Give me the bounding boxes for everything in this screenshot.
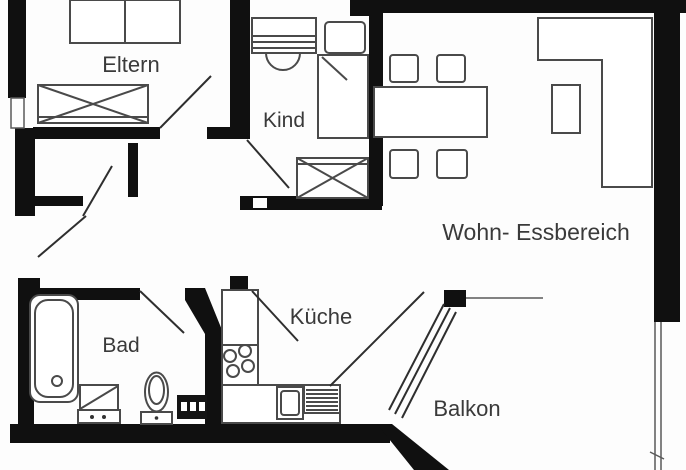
label-eltern: Eltern — [102, 52, 159, 77]
wall-eltern-bottom-left — [33, 127, 160, 139]
wall-closet-right-stub — [128, 143, 138, 197]
kind-desk-chair — [266, 53, 300, 70]
wall-left-top — [8, 0, 26, 98]
vanity-knob-1 — [90, 415, 94, 419]
dining-table — [374, 87, 487, 137]
vanity-knob-2 — [102, 415, 106, 419]
door-closet-upper — [83, 166, 112, 216]
wall-right — [654, 0, 680, 322]
label-kind: Kind — [263, 109, 305, 132]
kind-bed — [318, 55, 368, 138]
wall-kind-duct — [253, 198, 267, 208]
wall-closet-bottom — [35, 196, 83, 206]
toilet-button — [155, 416, 159, 420]
floorplan: Eltern Kind Wohn- Essbereich Bad Küche B… — [0, 0, 686, 470]
balcony-railing-hatch — [650, 452, 664, 459]
dining-chair-1 — [390, 55, 418, 82]
wall-eltern-kind-divider — [230, 0, 250, 139]
washing-machine-door-1 — [181, 402, 187, 411]
vanity-base — [78, 410, 120, 423]
wall-balcony-diagonal — [377, 424, 449, 470]
wall-balcony-door-pillar — [444, 290, 466, 307]
furniture-wohn — [374, 18, 652, 187]
door-bad — [140, 291, 184, 333]
dining-chair-3 — [390, 150, 418, 178]
furniture-bad — [30, 295, 207, 424]
dining-chair-2 — [437, 55, 465, 82]
washing-machine-door-2 — [190, 402, 196, 411]
label-kueche: Küche — [290, 304, 352, 329]
door-eltern — [160, 76, 211, 128]
side-table — [552, 85, 580, 133]
floorplan-canvas: Eltern Kind Wohn- Essbereich Bad Küche B… — [0, 0, 686, 470]
kind-bed-pillow — [325, 22, 365, 53]
washing-machine-door-3 — [199, 402, 205, 411]
label-balkon: Balkon — [433, 396, 500, 421]
wall-top-living — [383, 0, 686, 13]
door-closet-lower — [38, 216, 86, 257]
kitchen-tall-cabinet — [222, 290, 258, 345]
door-kind — [247, 140, 289, 188]
label-bad: Bad — [102, 334, 139, 357]
wall-top-kind-stub — [350, 0, 370, 16]
furniture-kind — [252, 18, 368, 198]
wall-left-mid — [15, 128, 35, 216]
wall-bottom — [10, 424, 390, 443]
label-wohn-essbereich: Wohn- Essbereich — [442, 219, 630, 245]
window-left — [11, 98, 24, 128]
dining-chair-4 — [437, 150, 467, 178]
